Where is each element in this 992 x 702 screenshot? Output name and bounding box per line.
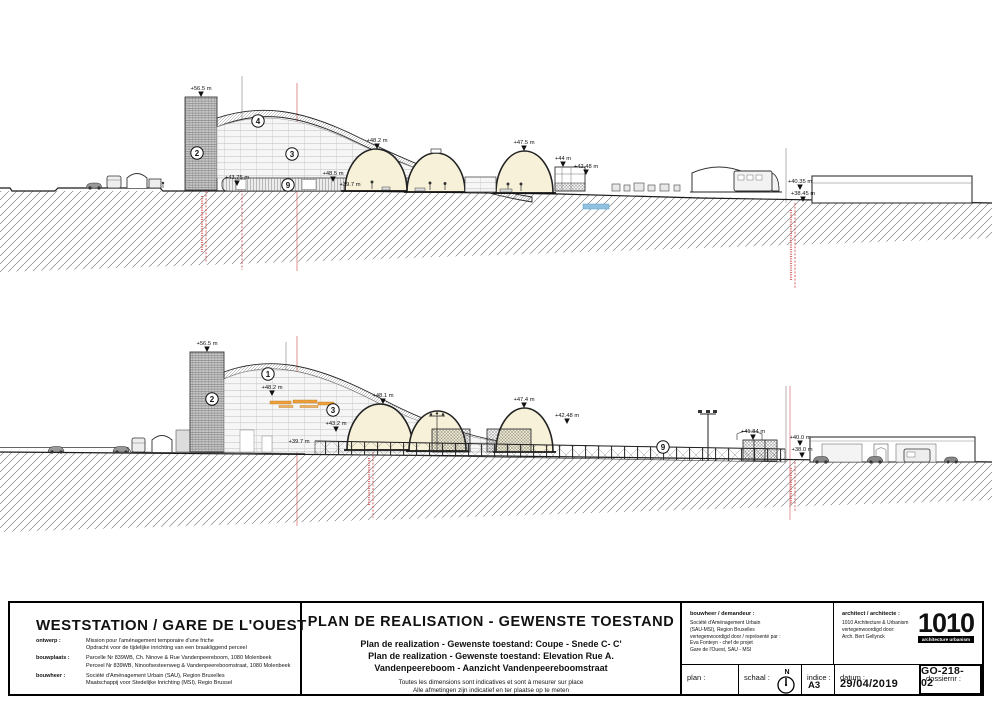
section-c-c-drawing: +56.5 m+43.75 m+48.5 m+39.7 m+48.2 m+47.… [0,76,992,288]
street-objects-left [48,430,190,454]
client-lines: Société d'Aménagement Urbain (SAU-MSI), … [690,620,829,654]
reference-bubble-number: 3 [290,150,295,159]
reference-bubble-number: 2 [210,395,215,404]
metro-line-marker [583,204,609,209]
info-text: Mission pour l'aménagement temporaire d'… [86,638,247,652]
drawing-sheet: +56.5 m+43.75 m+48.5 m+39.7 m+48.2 m+47.… [0,0,992,702]
street-objects-left [86,174,164,190]
info-row-bouwplaats: bouwplaats : Parcelle Nr 839WB, Ch. Nino… [36,655,296,669]
client-cell: bouwheer / demandeur : Société d'Aménage… [682,603,834,664]
level-marker-label: +42.48 m [574,164,599,170]
level-marker-label: +48.2 m [261,385,282,391]
level-marker-triangle [560,162,566,168]
title-block-right: bouwheer / demandeur : Société d'Aménage… [682,603,982,694]
ground-hatch [0,452,992,532]
level-marker-label: +47.4 m [513,397,534,403]
small-building [555,167,585,191]
reference-bubble-number: 9 [286,181,291,190]
north-compass-icon: N [774,666,798,701]
reference-bubble-number: 9 [661,443,666,452]
info-label: bouwheer : [36,673,86,687]
domes [341,149,556,193]
svg-text:N: N [784,669,789,676]
reference-bubble-number: 3 [331,406,336,415]
architect-header: architect / architecte : [842,611,908,617]
plan-subtitles: Plan de realization - Gewenste toestand:… [302,639,680,675]
level-marker-label: +40.35 m [788,179,813,185]
level-marker-label: +48.2 m [366,138,387,144]
level-marker-label: +48.1 m [372,393,393,399]
level-marker-label: +39.7 m [339,182,360,188]
plan-disclaimers: Toutes les dimensions sont indicatives e… [302,679,680,696]
level-marker-label: +56.5 m [196,341,217,347]
datum-field: datum : 29/04/2019 [835,665,920,694]
architect-lines: 1010 Architecture & Urbanism vertegenwoo… [842,620,908,640]
dossier-field: dossiernr : GO-218-02 [919,664,982,695]
level-marker-triangle [521,403,527,409]
level-marker-triangle [564,419,570,425]
schaal-field: schaal : N [739,665,802,694]
warehouse-right [812,176,972,203]
door-opening [240,430,254,452]
level-marker-label: +38.45 m [791,191,816,197]
level-marker-label: +48.5 m [322,171,343,177]
datum-value: 29/04/2019 [840,678,898,690]
dome-connector [465,177,496,192]
door-opening [302,180,316,190]
info-text: Société d'Aménagement Urbain (SAU), Regi… [86,673,232,687]
title-block-fields: plan : schaal : N indice : A3 datum [682,665,982,694]
drawings-canvas: +56.5 m+43.75 m+48.5 m+39.7 m+48.2 m+47.… [0,0,992,600]
platform-objects [612,183,680,191]
level-marker-label: +44 m [555,156,571,162]
tower [185,97,217,190]
logo-subtext: architecture urbanism [918,636,974,643]
level-marker-triangle [521,146,527,152]
logo-text: 1010 [918,611,974,635]
plan-field: plan : [682,665,739,694]
architect-cell: architect / architecte : 1010 Architectu… [834,603,982,664]
level-marker-triangle [797,185,803,191]
door-opening [262,436,272,452]
architect-info: architect / architecte : 1010 Architectu… [842,611,908,662]
dossier-value: GO-218-02 [921,665,975,689]
level-marker-label: +40.0 m [789,435,810,441]
level-marker-triangle [797,441,803,447]
level-marker-label: +38.0 m [791,447,812,453]
info-label: bouwplaats : [36,655,86,669]
title-block-plan: PLAN DE REALISATION - GEWENSTE TOESTAND … [302,603,682,694]
depot-and-train [690,167,782,192]
level-marker-triangle [799,453,805,459]
level-marker-triangle [198,92,204,98]
logo-1010: 1010 architecture urbanism [918,611,974,662]
level-marker-label: +42.48 m [555,413,580,419]
level-marker-label: +43.2 m [325,421,346,427]
info-label: ontwerp : [36,638,86,652]
reference-bubble-number: 1 [266,370,271,379]
project-title: WESTSTATION / GARE DE L'OUEST [36,617,294,634]
title-block-parties: bouwheer / demandeur : Société d'Aménage… [682,603,982,665]
plan-title: PLAN DE REALISATION - GEWENSTE TOESTAND [302,614,680,630]
client-header: bouwheer / demandeur : [690,611,829,617]
title-block: WESTSTATION / GARE DE L'OUEST ontwerp : … [8,601,984,696]
level-marker-label: +43.75 m [225,175,250,181]
project-info-rows: ontwerp : Mission pour l'aménagement tem… [36,635,296,687]
level-marker-label: +41.84 m [741,429,766,435]
level-marker-triangle [204,347,210,353]
street-right [810,437,975,464]
reference-bubble-number: 2 [195,149,200,158]
elevation-drawing: +56.5 m+48.2 m+48.1 m+47.4 m+43.2 m+39.7… [0,336,992,532]
level-marker-label: +56.5 m [190,86,211,92]
reference-bubble-number: 4 [256,117,261,126]
indice-value: A3 [808,680,820,691]
info-text: Parcelle Nr 839WB, Ch. Ninove & Rue Vand… [86,655,290,669]
level-marker-label: +39.7 m [288,439,309,445]
title-block-project: WESTSTATION / GARE DE L'OUEST ontwerp : … [10,603,302,694]
indice-field: indice : A3 [802,665,835,694]
level-marker-label: +47.5 m [513,140,534,146]
info-row-ontwerp: ontwerp : Mission pour l'aménagement tem… [36,638,296,652]
info-row-bouwheer: bouwheer : Société d'Aménagement Urbain … [36,673,296,687]
entry-booth [737,431,777,461]
